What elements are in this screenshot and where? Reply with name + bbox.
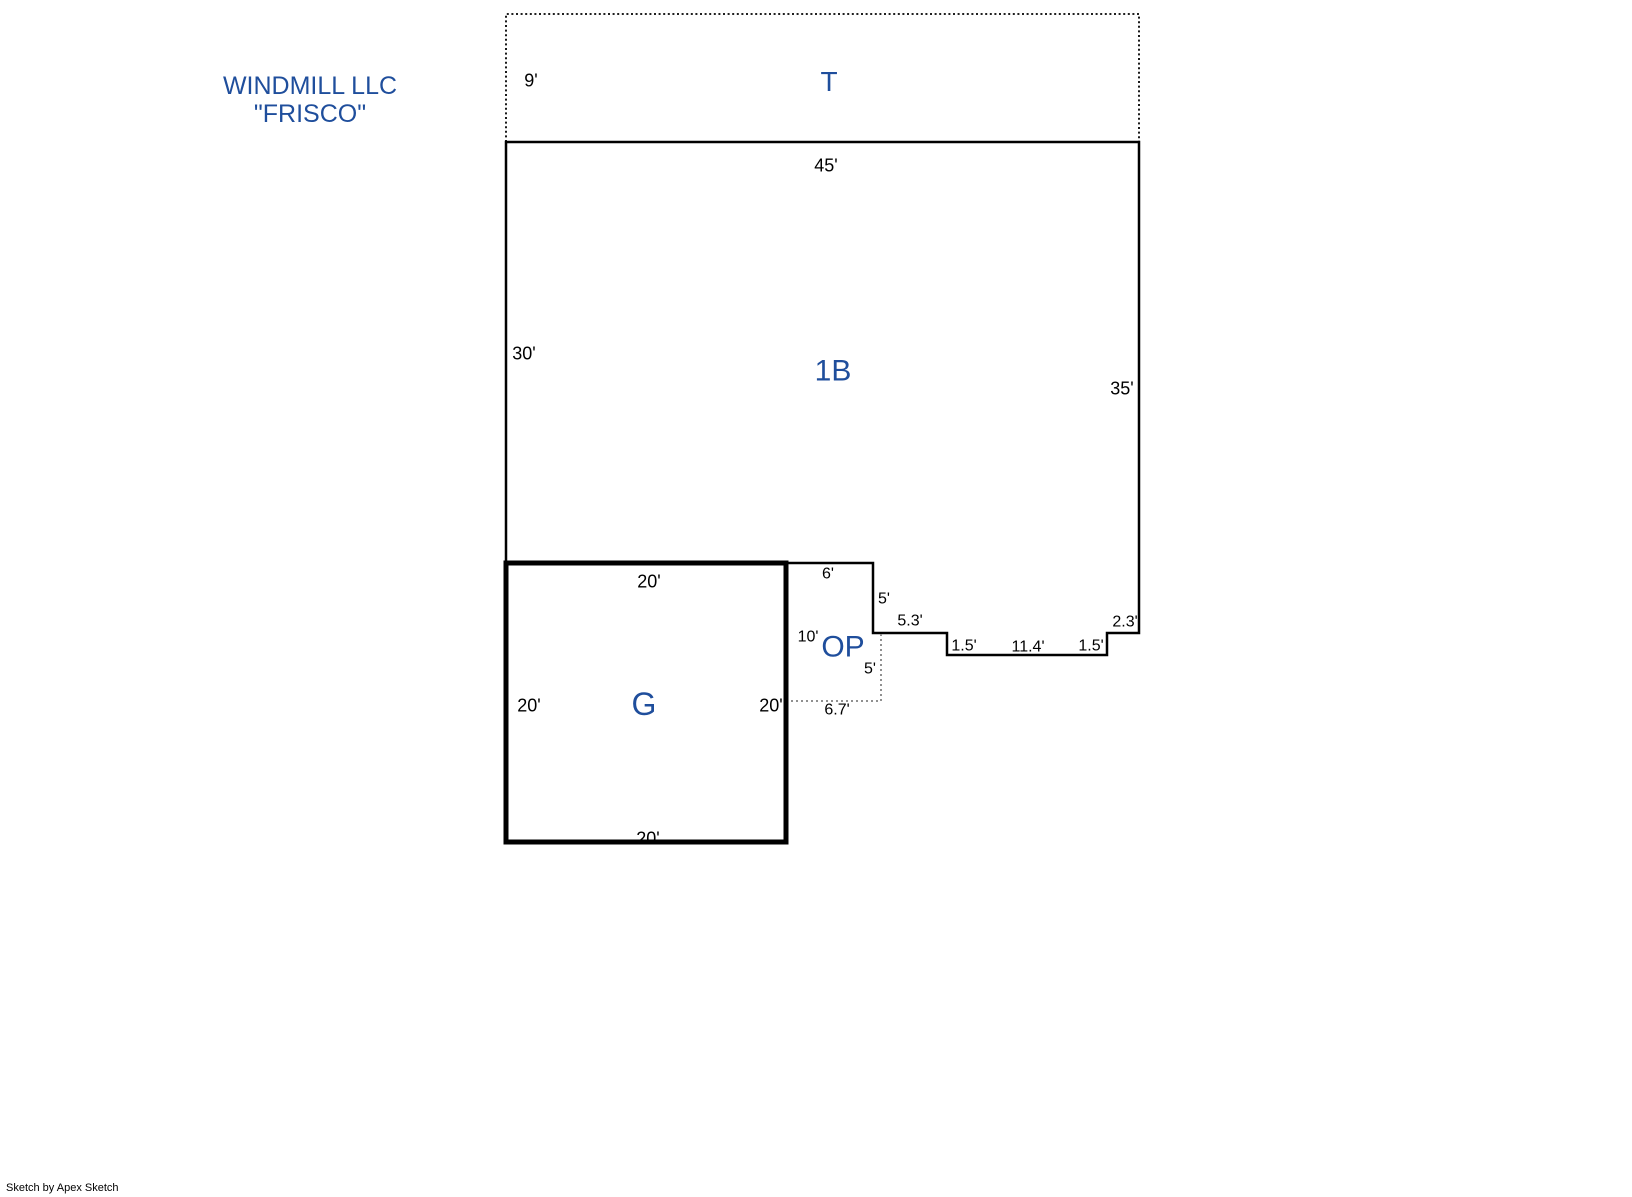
dim-step-2-3: 2.3': [1112, 614, 1137, 631]
dim-step-5-3: 5.3': [897, 613, 922, 630]
area-label-t: T: [820, 66, 837, 97]
dim-step-1-5-right: 1.5': [1078, 638, 1103, 655]
dim-op-top: 6': [822, 566, 834, 583]
floor-plan: 9' 45' 30' 35' 20' 20' 20' 20' 6' 5' 10'…: [0, 0, 1632, 1197]
area-label-1b: 1B: [815, 355, 852, 388]
dim-step-1-5-left: 1.5': [951, 638, 976, 655]
dim-g-top: 20': [637, 571, 660, 591]
dim-g-left: 20': [517, 695, 540, 715]
dim-b1-left: 30': [512, 343, 535, 363]
dim-b1-top: 45': [814, 155, 837, 175]
apex-sketch-credit: Sketch by Apex Sketch: [6, 1182, 119, 1194]
area-label-op: OP: [821, 631, 864, 664]
sketch-page: WINDMILL LLC "FRISCO" 9' 45' 30' 35' 20'…: [0, 0, 1632, 1197]
dim-op-left: 10': [798, 629, 819, 646]
dim-op-upper-right: 5': [878, 591, 890, 608]
dim-step-11-4: 11.4': [1011, 639, 1044, 656]
dim-g-bottom: 20': [636, 828, 659, 848]
dim-b1-right: 35': [1110, 378, 1133, 398]
dim-op-lower-right: 5': [864, 661, 876, 678]
dim-t-left: 9': [524, 70, 537, 90]
area-label-g: G: [632, 686, 657, 722]
dim-op-bottom: 6.7': [824, 702, 849, 719]
dim-g-right: 20': [759, 695, 782, 715]
